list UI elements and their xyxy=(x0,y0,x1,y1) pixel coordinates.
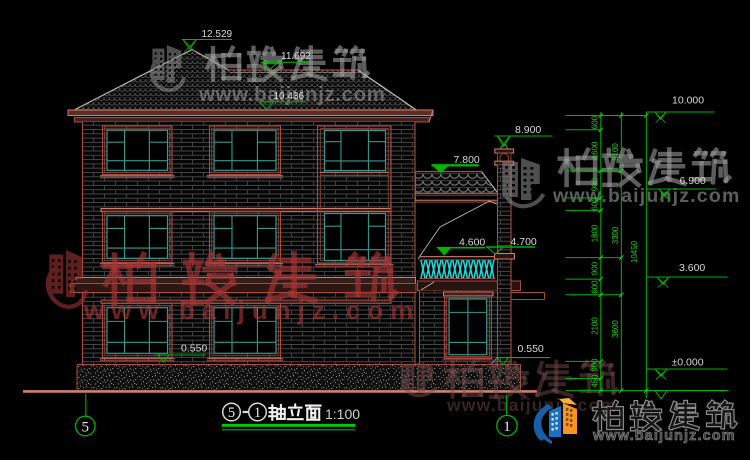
svg-text:10.436: 10.436 xyxy=(274,91,305,102)
svg-text:1: 1 xyxy=(503,419,511,435)
svg-text:12.529: 12.529 xyxy=(202,29,233,40)
svg-text:11.692: 11.692 xyxy=(281,51,311,62)
svg-text:4.600: 4.600 xyxy=(459,237,485,249)
svg-text:450: 450 xyxy=(590,374,599,388)
svg-text:10.000: 10.000 xyxy=(672,95,704,107)
svg-text:0.550: 0.550 xyxy=(181,343,207,355)
svg-text:0.550: 0.550 xyxy=(518,343,544,355)
svg-text:5: 5 xyxy=(228,405,235,421)
svg-text:8.900: 8.900 xyxy=(515,124,541,136)
svg-text:www.baijunjz.com: www.baijunjz.com xyxy=(83,295,420,325)
svg-text:600: 600 xyxy=(590,197,599,211)
svg-text:1600: 1600 xyxy=(590,141,599,159)
svg-text:±0.000: ±0.000 xyxy=(672,357,704,369)
svg-text:900: 900 xyxy=(590,358,599,372)
svg-text:600: 600 xyxy=(590,280,599,294)
svg-text:2100: 2100 xyxy=(590,317,599,335)
svg-text:1:100: 1:100 xyxy=(325,406,360,422)
svg-text:6.900: 6.900 xyxy=(680,175,706,187)
svg-text:5: 5 xyxy=(82,420,90,436)
svg-text:600: 600 xyxy=(590,115,599,129)
svg-text:10450: 10450 xyxy=(630,240,639,263)
svg-text:www.baijunjz.com: www.baijunjz.com xyxy=(592,428,736,444)
svg-text:5100: 5100 xyxy=(611,143,620,161)
svg-text:1: 1 xyxy=(254,405,261,421)
svg-text:1800: 1800 xyxy=(590,224,599,242)
svg-text:3600: 3600 xyxy=(611,320,620,338)
svg-text:900: 900 xyxy=(590,177,599,191)
svg-text:900: 900 xyxy=(590,261,599,275)
svg-text:3300: 3300 xyxy=(611,226,620,244)
svg-text:www.baijunjz.com: www.baijunjz.com xyxy=(446,395,617,415)
svg-text:3.600: 3.600 xyxy=(679,262,705,274)
